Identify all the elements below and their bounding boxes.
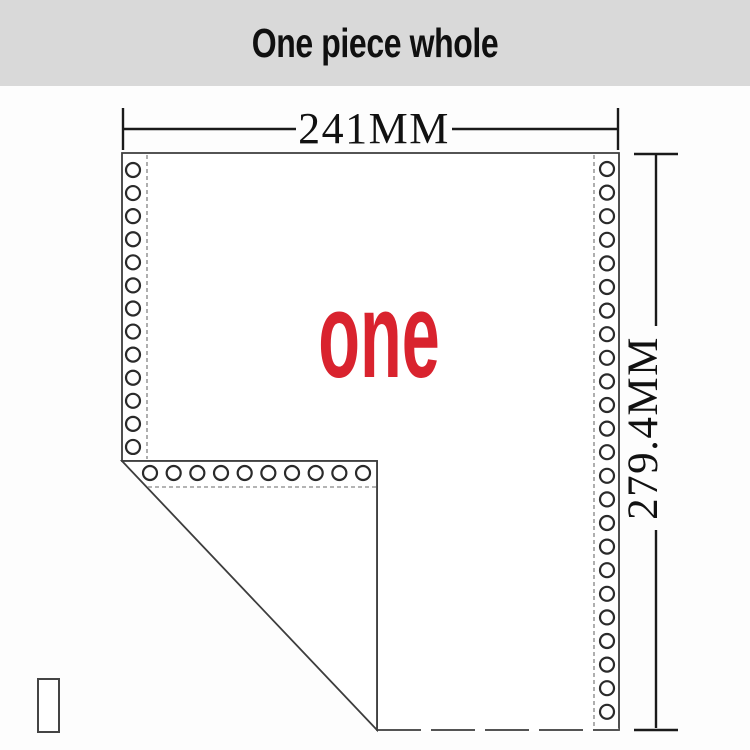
sprocket-hole [600, 681, 614, 695]
sprocket-hole [126, 163, 140, 177]
sprocket-hole [600, 516, 614, 530]
sprocket-hole [600, 634, 614, 648]
sprocket-hole [600, 705, 614, 719]
sprocket-hole [126, 255, 140, 269]
sprocket-hole [238, 466, 252, 480]
sprocket-hole [600, 351, 614, 365]
sprocket-hole [285, 466, 299, 480]
sprocket-hole [600, 469, 614, 483]
sprocket-hole [126, 301, 140, 315]
sprocket-hole [600, 327, 614, 341]
sprocket-hole [126, 348, 140, 362]
paper-diagram: 241MM 279.4MM one [0, 0, 750, 750]
sprocket-hole [600, 398, 614, 412]
sprocket-hole [600, 162, 614, 176]
sprocket-hole [600, 540, 614, 554]
folded-corner [122, 461, 377, 730]
sprocket-hole [167, 466, 181, 480]
sprocket-hole [143, 466, 157, 480]
sprocket-hole [600, 256, 614, 270]
sprocket-hole [600, 304, 614, 318]
product-image: One piece whole 241MM [0, 0, 750, 750]
sprocket-hole [600, 492, 614, 506]
sprocket-hole [309, 466, 323, 480]
sprocket-hole [600, 587, 614, 601]
sprocket-hole [126, 440, 140, 454]
sprocket-hole [214, 466, 228, 480]
sprocket-hole [126, 417, 140, 431]
sprocket-hole [356, 466, 370, 480]
sprocket-hole [600, 186, 614, 200]
sprocket-hole [126, 232, 140, 246]
sprocket-hole [600, 374, 614, 388]
sprocket-hole [126, 394, 140, 408]
sprocket-hole [332, 466, 346, 480]
sprocket-hole [126, 278, 140, 292]
folded-corner-outline [122, 461, 377, 730]
sprocket-hole [600, 658, 614, 672]
sprocket-hole [261, 466, 275, 480]
width-dimension: 241MM [123, 104, 618, 153]
sprocket-hole [600, 563, 614, 577]
sprocket-hole [126, 186, 140, 200]
sprocket-hole [600, 445, 614, 459]
sprocket-hole [600, 233, 614, 247]
sprocket-hole [126, 325, 140, 339]
width-dimension-label: 241MM [298, 104, 450, 153]
sprocket-hole [126, 371, 140, 385]
sprocket-hole [600, 610, 614, 624]
sprocket-hole [600, 422, 614, 436]
height-dimension-label: 279.4MM [620, 336, 667, 520]
sprocket-hole [600, 209, 614, 223]
sprocket-hole [600, 280, 614, 294]
sprocket-hole [126, 209, 140, 223]
bottom-left-marker [38, 679, 59, 732]
center-label: one [318, 266, 439, 403]
sprocket-hole [190, 466, 204, 480]
height-dimension: 279.4MM [620, 154, 678, 730]
